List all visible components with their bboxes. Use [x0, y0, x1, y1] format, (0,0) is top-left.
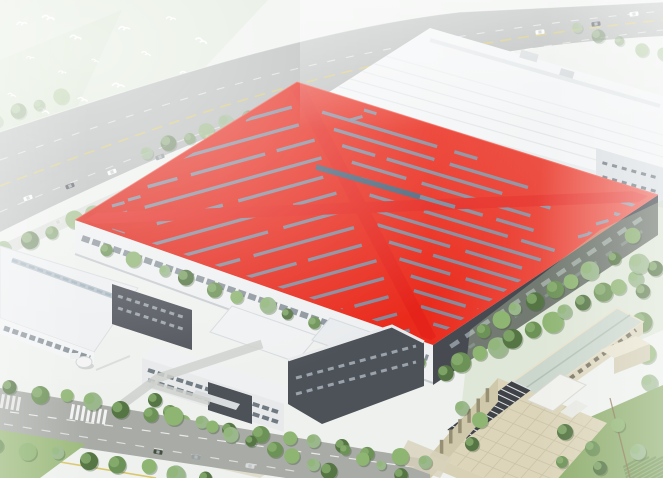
haze-left — [0, 0, 90, 478]
haze-right — [540, 0, 663, 478]
aerial-campus-rendering — [0, 0, 663, 478]
